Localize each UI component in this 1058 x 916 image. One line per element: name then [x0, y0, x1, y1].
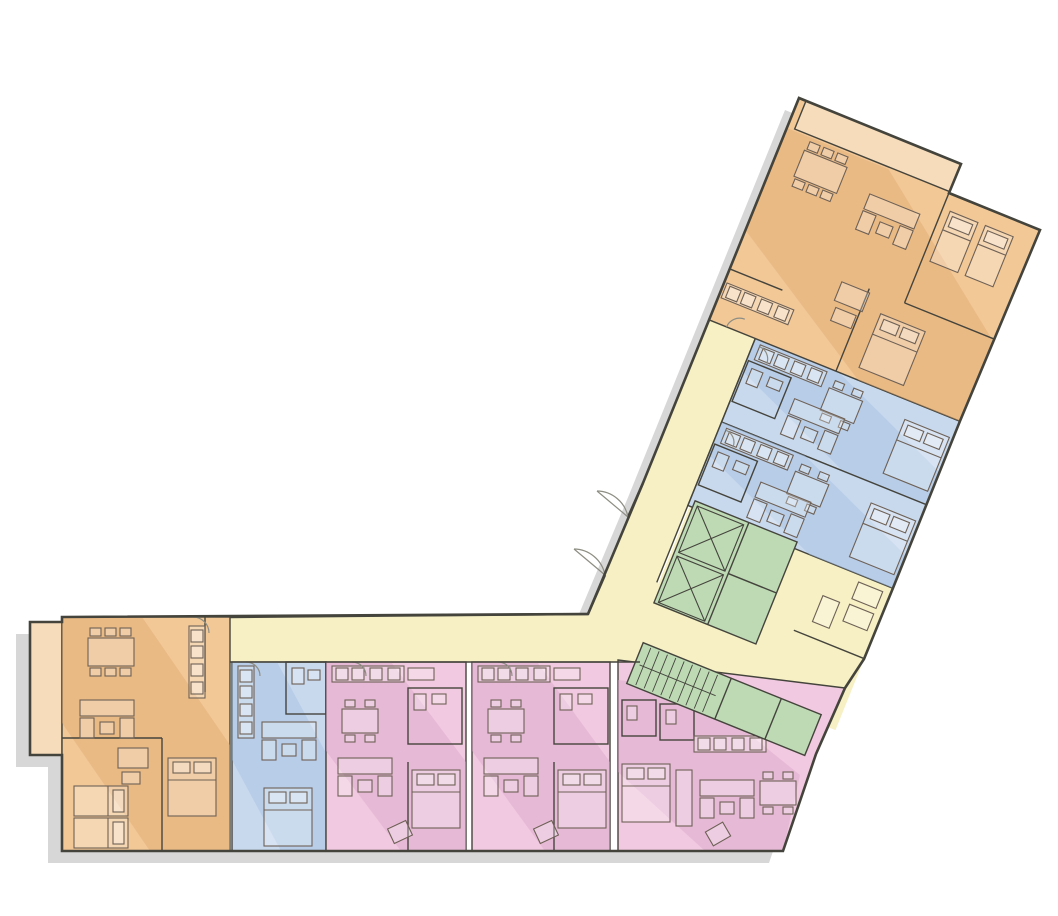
double-bed-glyph — [558, 770, 606, 828]
bathtub-glyph — [118, 748, 148, 768]
single-bed-glyph — [74, 786, 128, 816]
toilet-glyph — [414, 694, 426, 710]
double-bed-glyph — [264, 788, 312, 846]
toilet-glyph — [292, 668, 304, 684]
floor-plan-canvas — [0, 0, 1058, 916]
kitchen-counter-glyph — [478, 666, 550, 682]
double-bed-glyph — [168, 758, 216, 816]
wardrobe-glyph — [676, 770, 692, 826]
kitchen-counter-glyph — [408, 668, 434, 680]
kitchen-counter-glyph — [238, 666, 254, 738]
toilet-glyph — [627, 706, 637, 720]
kitchen-counter-glyph — [189, 626, 205, 698]
floor-plan-drawing — [0, 0, 1058, 916]
single-bed-glyph — [74, 818, 128, 848]
double-bed-glyph — [412, 770, 460, 828]
double-bed-glyph — [622, 764, 670, 822]
kitchen-counter-glyph — [554, 668, 580, 680]
unit-pink-a — [326, 662, 466, 851]
basin-glyph — [122, 772, 140, 784]
kitchen-counter-glyph — [694, 736, 766, 752]
basin-glyph — [578, 694, 592, 704]
toilet-glyph — [560, 694, 572, 710]
unit-pink-b — [472, 662, 610, 851]
basin-glyph — [432, 694, 446, 704]
dining-table-glyph — [88, 628, 134, 676]
unit-blue-studio — [232, 662, 326, 851]
balcony — [30, 622, 62, 755]
kitchen-counter-glyph — [332, 666, 404, 682]
toilet-glyph — [666, 710, 676, 724]
basin-glyph — [308, 670, 320, 680]
